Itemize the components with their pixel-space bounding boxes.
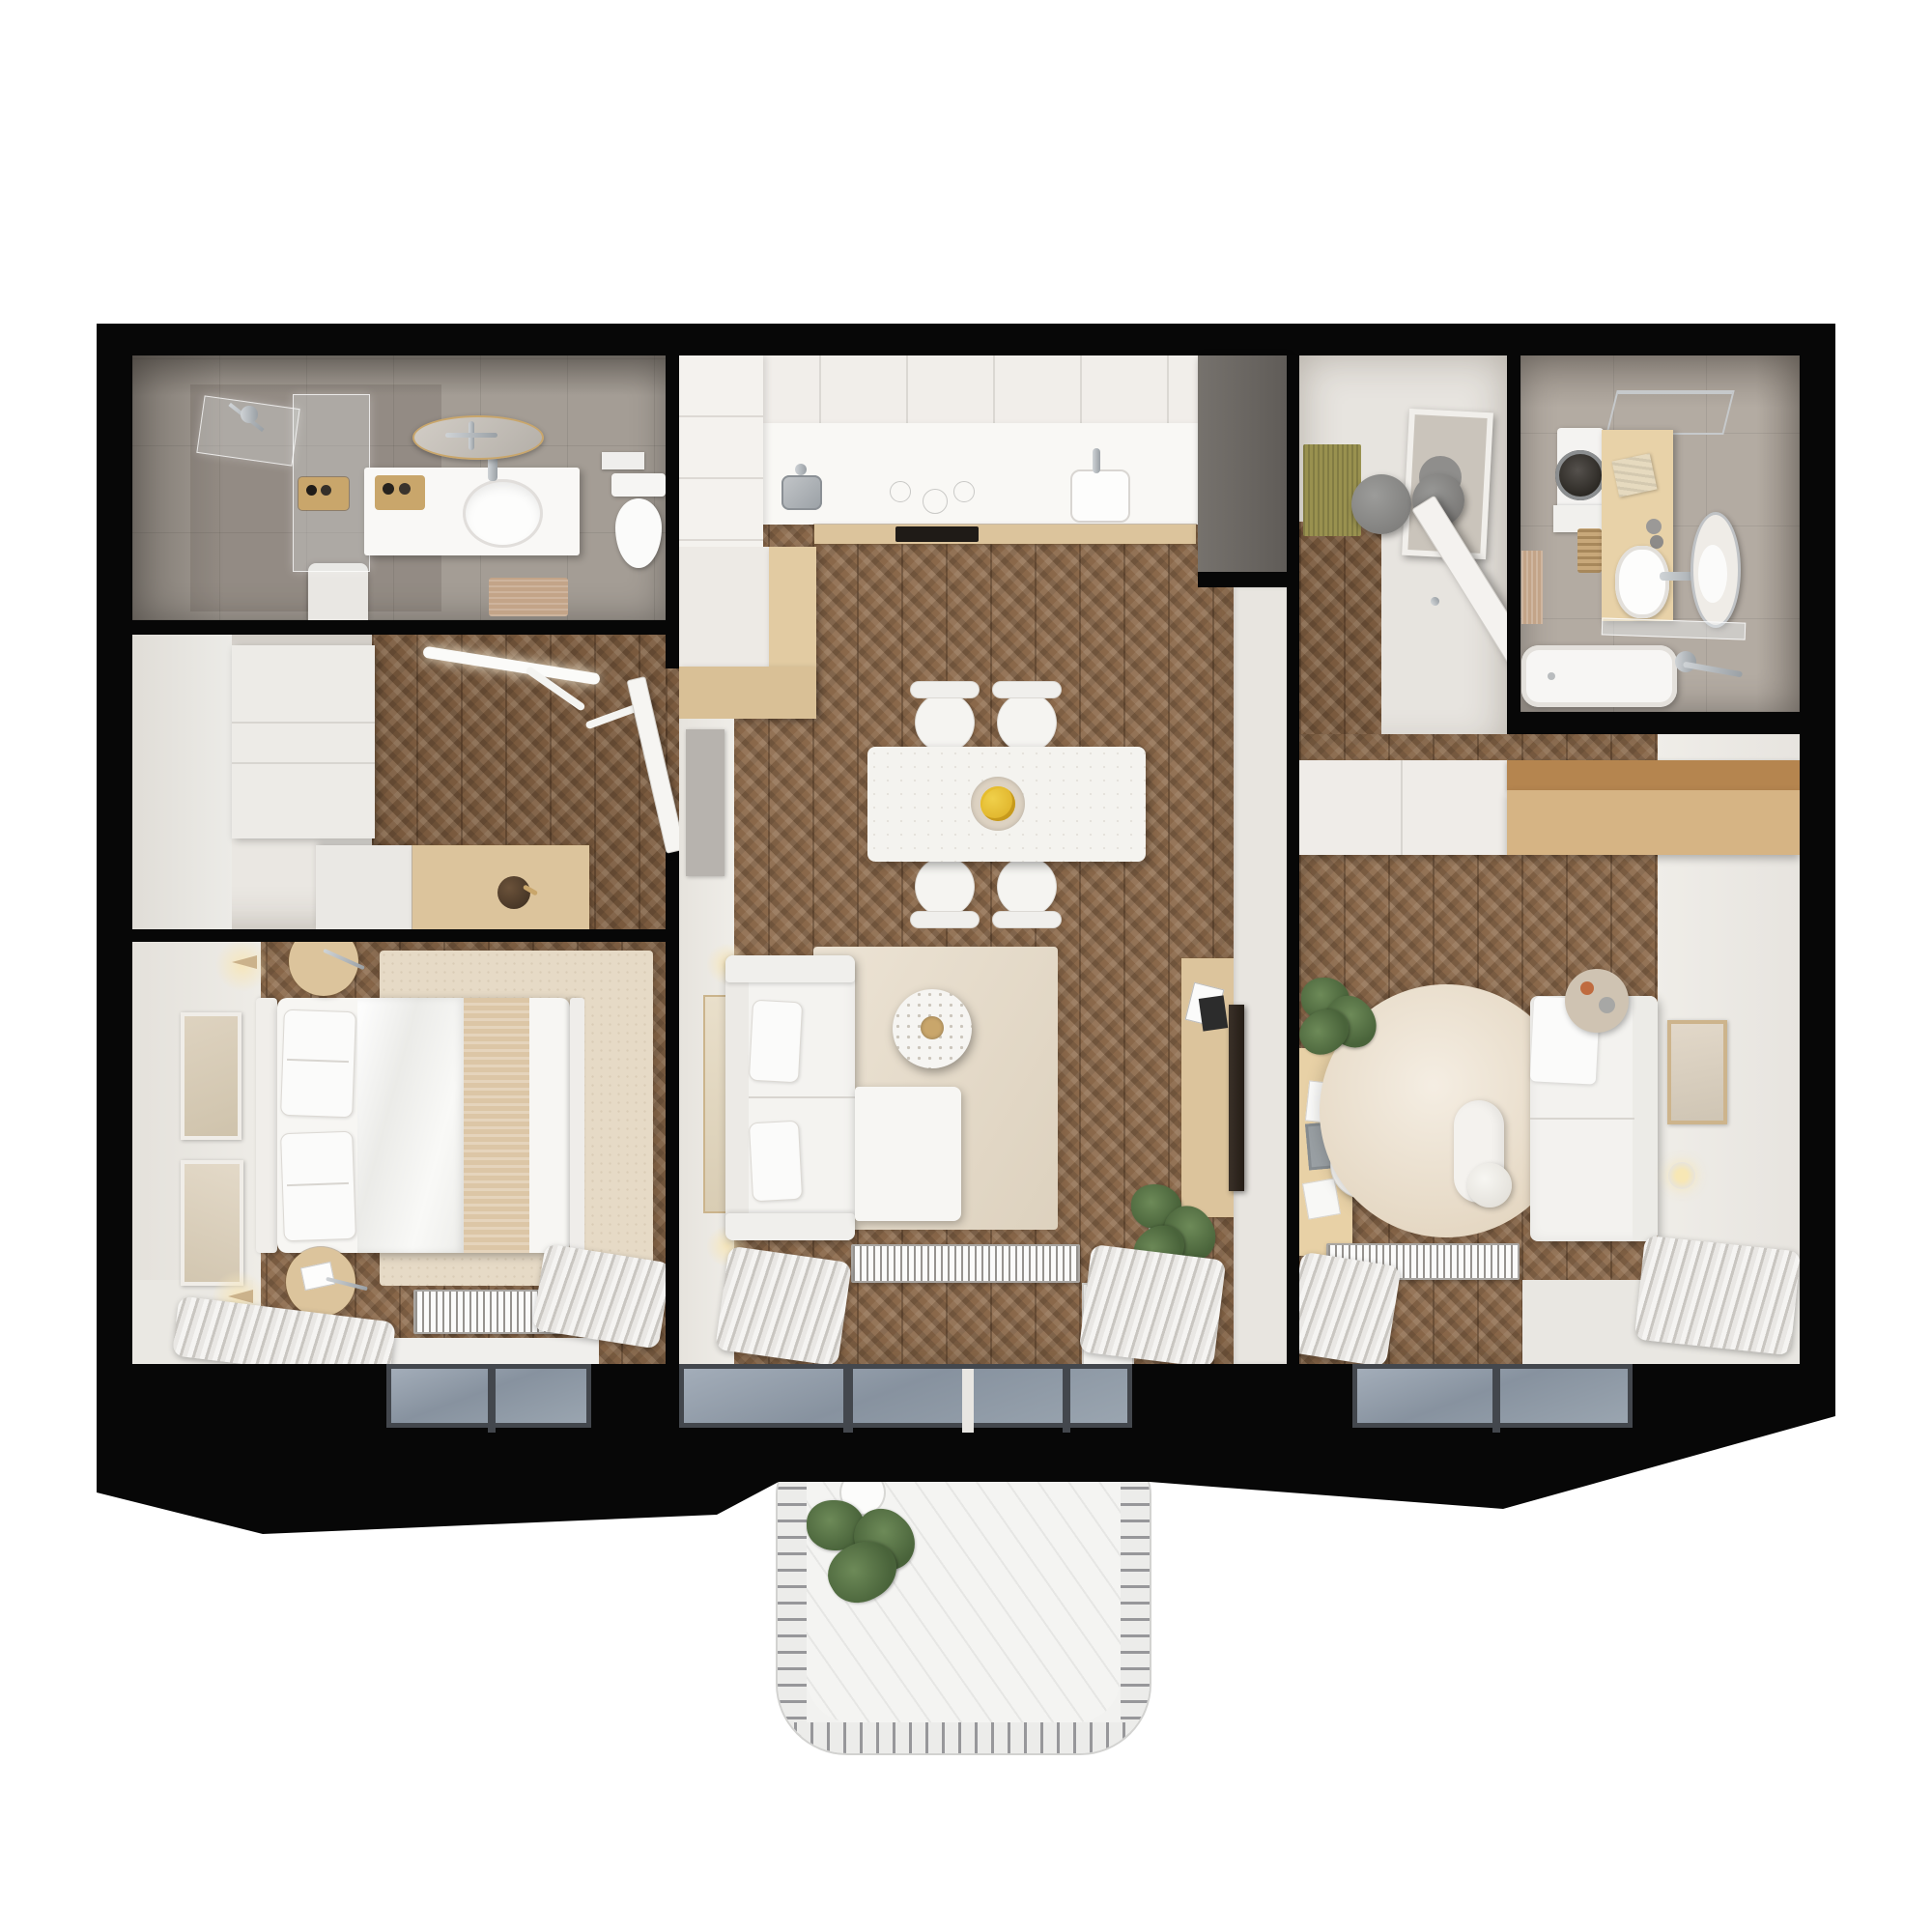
bed2-art-frame <box>1667 1020 1727 1124</box>
bed2-sofa-backrest <box>1633 996 1658 1241</box>
bath1-vent <box>602 452 644 469</box>
bath1-bottle <box>383 483 394 495</box>
bath2-tub-drain <box>1548 672 1555 680</box>
living-sofa-pillow <box>749 1000 803 1084</box>
entry-wood-floor <box>1299 522 1381 753</box>
dining-chair <box>916 694 974 752</box>
living-sofa-pillow <box>749 1121 803 1203</box>
living-gray-wall-panel <box>686 729 724 876</box>
dining-chair-back <box>911 682 979 697</box>
living-coffee-table-tray <box>921 1016 944 1039</box>
kitchen-white-basin <box>1070 469 1130 523</box>
balcony-railing-right <box>1121 1454 1150 1753</box>
bath2-glass-shelf <box>1602 617 1747 639</box>
kitchen-sink-faucet <box>795 464 807 475</box>
entry-doormat <box>1303 444 1361 536</box>
kitchen-base-cabinet-edge <box>814 525 1196 544</box>
bath2-sink <box>1615 546 1669 618</box>
bed1-sconce-glow <box>215 942 270 992</box>
kitchen-hob-zone <box>890 481 911 502</box>
window-mullion <box>1492 1369 1500 1433</box>
room-hallway-closet <box>132 635 666 929</box>
living-curtain-left <box>715 1246 852 1364</box>
wall-kitchen-entry <box>1287 355 1299 765</box>
dining-chair-back <box>993 682 1061 697</box>
balcony-railing-bottom <box>778 1722 1150 1753</box>
bath1-toilet-bowl <box>615 498 662 568</box>
hallway-wardrobe-seam <box>232 722 375 724</box>
bed1-curtain-left <box>172 1295 396 1364</box>
hallway-wardrobe <box>232 645 375 838</box>
window-mullion <box>488 1369 496 1433</box>
bed1-art-frame <box>181 1160 243 1286</box>
bath1-bottle <box>321 485 331 496</box>
bed1-duvet <box>357 998 464 1253</box>
living-curtain-right <box>1079 1244 1227 1364</box>
bath2-laundry-basket <box>1577 528 1602 573</box>
hallway-vase <box>497 876 530 909</box>
dining-chair <box>998 858 1056 916</box>
room-kitchen-living <box>679 355 1234 1364</box>
bed2-wardrobe-white <box>1299 760 1507 855</box>
bed2-side-table <box>1565 969 1629 1033</box>
bath1-bottle <box>399 483 411 495</box>
bath2-wall-face-right <box>1756 355 1800 712</box>
hallway-wardrobe-seam <box>232 762 375 764</box>
bed1-pillow <box>280 1131 356 1242</box>
window-divider <box>962 1369 974 1433</box>
living-sofa-backrest <box>725 955 749 1240</box>
hallway-sideboard-white <box>316 845 412 929</box>
bed1-headboard <box>256 998 277 1253</box>
living-sofa-armrest <box>725 1213 855 1240</box>
bath1-sink <box>463 479 543 548</box>
kitchen-wall-face-left <box>679 547 769 669</box>
dining-lemons <box>980 786 1015 821</box>
window-mullion <box>1063 1369 1070 1433</box>
room-bedroom-2 <box>1299 734 1800 1364</box>
bed2-side-table-cup <box>1580 981 1594 995</box>
wall-living-bedroom2-top <box>1234 587 1287 1364</box>
kitchen-oven <box>895 526 979 542</box>
hallway-wall-face-left <box>132 635 232 929</box>
entry-stool <box>1351 474 1411 534</box>
bath1-bath-mat <box>489 578 568 616</box>
bed1-window-sill <box>377 1338 599 1364</box>
bedroom2-window <box>1352 1364 1633 1428</box>
dining-chair-back <box>993 912 1061 927</box>
bath2-bath-mat <box>1521 551 1543 624</box>
living-radiator <box>851 1244 1080 1283</box>
bed2-sofa-seam <box>1530 1118 1634 1120</box>
bath2-mirror-reflection <box>1698 545 1727 603</box>
kitchen-basin-faucet <box>1093 448 1100 473</box>
bed2-side-table-dish <box>1599 997 1615 1013</box>
kitchen-tall-cabinets-top <box>734 355 1234 423</box>
bed2-curtain-left <box>1299 1252 1402 1364</box>
bath1-bottle <box>306 485 317 496</box>
bed2-wardrobe-oak-top <box>1507 760 1800 790</box>
bed1-art-frame <box>181 1012 241 1140</box>
wall-stub <box>1198 572 1299 587</box>
bath2-towel-rack <box>1605 390 1734 435</box>
bed1-footboard <box>570 998 584 1253</box>
bed2-wardrobe-oak <box>1507 790 1800 855</box>
room-bathroom-2 <box>1520 355 1800 712</box>
living-tv-leaning <box>1229 1005 1244 1191</box>
entry-gray-wardrobe <box>1198 355 1287 572</box>
kitchen-hob-zone <box>953 481 975 502</box>
balcony <box>778 1454 1150 1753</box>
bath1-mirror-reflection <box>445 433 497 438</box>
room-bedroom-1 <box>132 942 666 1364</box>
living-sofa-armrest <box>725 955 855 982</box>
kitchen-counter <box>763 423 1199 525</box>
living-sofa-seam <box>749 1096 855 1098</box>
dining-chair-back <box>911 912 979 927</box>
bath1-round-mirror <box>412 415 544 460</box>
bed2-curtain-right <box>1634 1236 1800 1355</box>
room-entry-hall <box>1299 355 1507 753</box>
living-sofa-chaise <box>855 1087 961 1221</box>
wall-living-bedroom2 <box>1287 894 1299 1364</box>
dining-chair <box>998 694 1056 752</box>
kitchen-steel-sink <box>781 475 822 510</box>
bed2-ball-cushion <box>1467 1163 1512 1207</box>
room-bathroom-1 <box>132 355 666 620</box>
floor-plan <box>0 0 1932 1932</box>
bed2-desk-paper <box>1302 1178 1341 1219</box>
living-console-art-cards <box>1199 995 1228 1031</box>
bed2-wardrobe-seam <box>1401 760 1403 855</box>
bed1-pillow <box>280 1009 356 1119</box>
living-window <box>679 1364 1132 1428</box>
window-mullion <box>843 1369 853 1433</box>
bath1-toilet-tank <box>611 473 666 497</box>
bath1-shower-head <box>241 406 258 423</box>
bath2-bathtub <box>1521 645 1677 707</box>
kitchen-tall-cabinets-left <box>679 355 763 547</box>
entry-door-handle <box>1429 595 1440 607</box>
balcony-railing-left <box>778 1454 807 1753</box>
bath2-towels <box>1611 453 1657 497</box>
kitchen-peninsula-horizontal <box>679 667 816 719</box>
bed1-runner <box>464 998 529 1253</box>
kitchen-hob-zone <box>923 489 948 514</box>
bedroom1-window <box>386 1364 591 1428</box>
dining-chair <box>916 858 974 916</box>
bath2-washer-drum <box>1555 450 1605 500</box>
bath2-soap <box>1646 519 1662 534</box>
bed2-wall-lamp <box>1668 1162 1695 1189</box>
